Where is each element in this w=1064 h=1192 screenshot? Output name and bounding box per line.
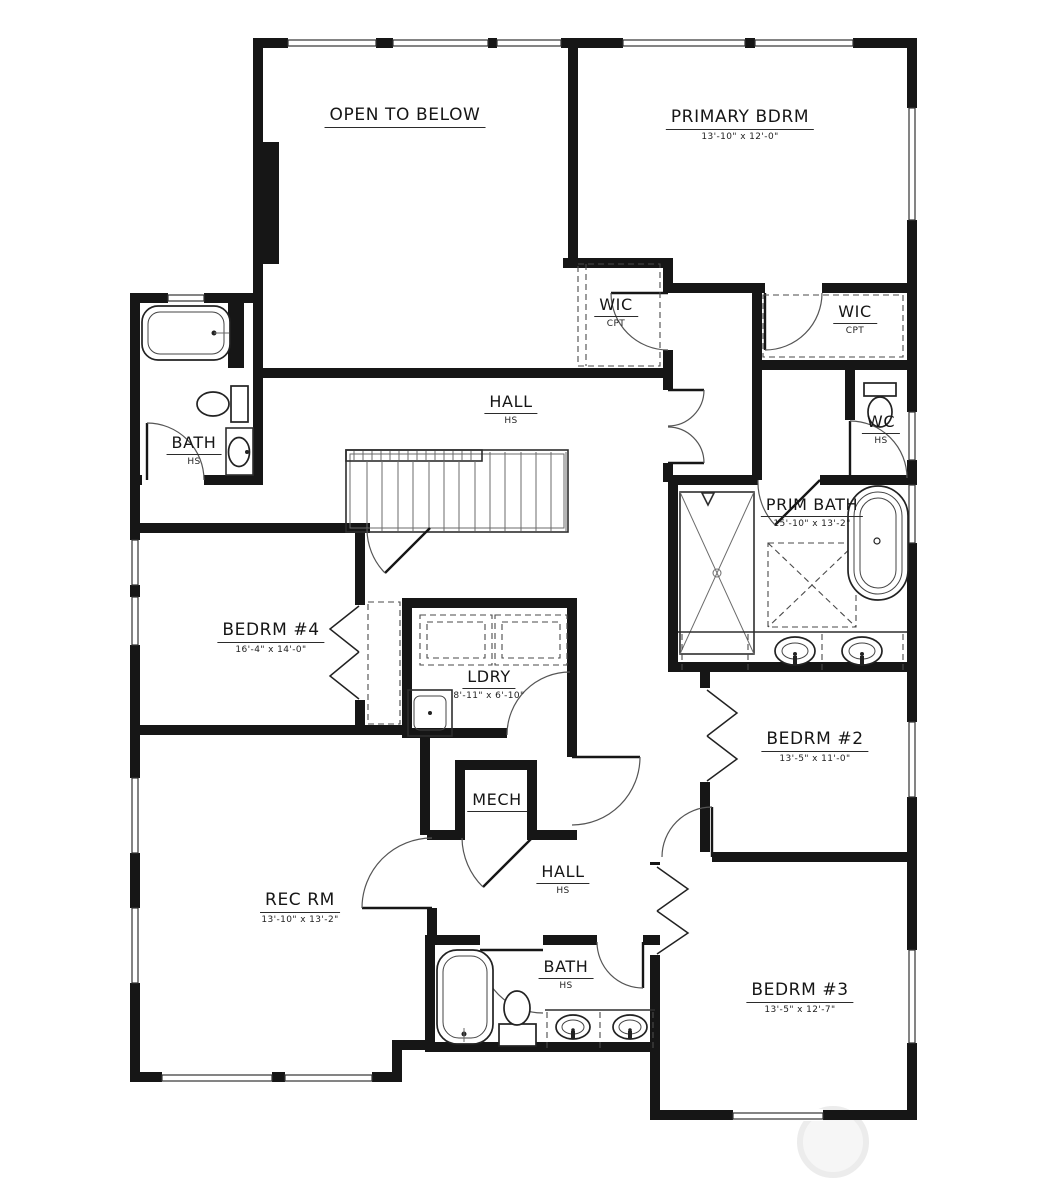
room-sub: HS	[536, 886, 589, 896]
ceiling-feature	[768, 543, 856, 627]
room-label-ldry: LDRY 8'-11" x 6'-10"	[453, 667, 524, 701]
room-label-hall-upper: HALL HS	[484, 392, 537, 426]
room-label-open-to-below: OPEN TO BELOW	[325, 105, 486, 128]
room-label-hall-lower: HALL HS	[536, 862, 589, 896]
toilet-icon	[197, 386, 248, 422]
room-dimensions: 13'-10" x 13'-2"	[260, 915, 340, 925]
room-dimensions: 16'-4" x 14'-0"	[217, 645, 324, 655]
room-name: BEDRM #4	[217, 620, 324, 643]
room-label-bath-upper: BATH HS	[167, 433, 222, 467]
room-name: HALL	[536, 862, 589, 884]
sink-icon	[226, 428, 253, 475]
room-sub: HS	[484, 416, 537, 426]
room-name: HALL	[484, 392, 537, 414]
room-label-bedrm3: BEDRM #3 13'-5" x 12'-7"	[746, 980, 853, 1015]
room-name: BATH	[539, 957, 594, 979]
room-dimensions: 15'-10" x 13'-2"	[761, 519, 863, 529]
room-label-prim-bath: PRIM BATH 15'-10" x 13'-2"	[761, 495, 863, 529]
washer-dryer-icon	[420, 615, 567, 665]
windows	[129, 37, 918, 1121]
room-name: WIC	[833, 302, 877, 324]
room-name: LDRY	[462, 667, 516, 689]
room-sub: HS	[862, 436, 900, 446]
walls	[130, 38, 917, 1120]
shower-icon	[680, 492, 754, 654]
bifold-door-icon	[707, 690, 737, 781]
room-label-wc: WC HS	[862, 412, 900, 446]
bathtub-icon	[437, 950, 493, 1044]
floor-plan-drawing	[0, 0, 1064, 1192]
bifold-door-icon	[657, 867, 688, 954]
room-label-wic-left: WIC CPT	[594, 295, 638, 329]
room-label-bath-lower: BATH HS	[539, 957, 594, 991]
bathtub-icon	[142, 306, 230, 360]
room-dimensions: 13'-5" x 12'-7"	[746, 1005, 853, 1015]
room-label-wic-right: WIC CPT	[833, 302, 877, 336]
room-name: WIC	[594, 295, 638, 317]
room-name: BEDRM #2	[761, 729, 868, 752]
room-label-primary-bdrm: PRIMARY BDRM 13'-10" x 12'-0"	[666, 107, 814, 142]
floor-plan: OPEN TO BELOW PRIMARY BDRM 13'-10" x 12'…	[0, 0, 1064, 1192]
room-dimensions: 8'-11" x 6'-10"	[453, 691, 524, 701]
room-name: OPEN TO BELOW	[325, 105, 486, 128]
closet-dashes	[368, 264, 903, 724]
room-label-bedrm4: BEDRM #4 16'-4" x 14'-0"	[217, 620, 324, 655]
room-sub: CPT	[833, 326, 877, 336]
room-label-bedrm2: BEDRM #2 13'-5" x 11'-0"	[761, 729, 868, 764]
room-sub: HS	[167, 457, 222, 467]
room-name: BEDRM #3	[746, 980, 853, 1003]
room-label-mech: MECH	[467, 790, 527, 812]
room-dimensions: 13'-10" x 12'-0"	[666, 132, 814, 142]
room-name: MECH	[467, 790, 527, 812]
room-name: REC RM	[260, 890, 340, 913]
room-sub: CPT	[594, 319, 638, 329]
room-sub: HS	[539, 981, 594, 991]
room-label-rec-rm: REC RM 13'-10" x 13'-2"	[260, 890, 340, 925]
room-name: WC	[862, 412, 900, 434]
room-name: PRIM BATH	[761, 495, 863, 517]
room-dimensions: 13'-5" x 11'-0"	[761, 754, 868, 764]
stairs-icon	[346, 450, 568, 532]
room-name: PRIMARY BDRM	[666, 107, 814, 130]
room-name: BATH	[167, 433, 222, 455]
bifold-door-icon	[330, 606, 359, 699]
